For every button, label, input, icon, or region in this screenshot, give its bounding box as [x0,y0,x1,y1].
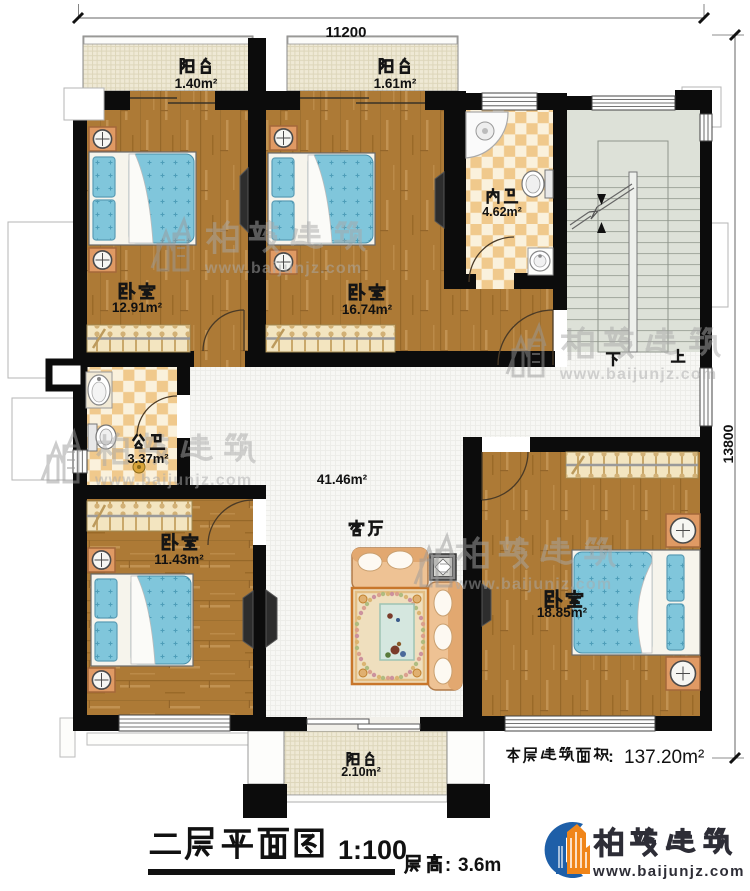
svg-text:1.61m²: 1.61m² [374,76,417,91]
svg-text:www.baijunjz.com: www.baijunjz.com [559,366,717,383]
svg-text:www.baijunjz.com: www.baijunjz.com [592,863,745,880]
svg-text:www.baijunjz.com: www.baijunjz.com [94,472,252,489]
svg-text::: : [608,747,614,766]
svg-text:3.37m²: 3.37m² [127,451,169,466]
svg-text::: : [445,855,451,876]
svg-text:1:100: 1:100 [338,835,407,865]
svg-text:137.20m²: 137.20m² [624,747,704,768]
svg-text:1.40m²: 1.40m² [175,76,218,91]
svg-text:11200: 11200 [326,24,367,41]
svg-text:2.10m²: 2.10m² [341,765,381,779]
svg-text:www.baijunjz.com: www.baijunjz.com [204,260,362,277]
svg-text:18.85m²: 18.85m² [537,605,588,620]
svg-text:3.6m: 3.6m [458,855,501,876]
svg-text:www.baijunjz.com: www.baijunjz.com [454,576,612,593]
svg-text:4.62m²: 4.62m² [482,205,522,219]
svg-text:11.43m²: 11.43m² [154,552,204,567]
svg-text:16.74m²: 16.74m² [342,302,393,317]
svg-text:13800: 13800 [720,424,736,463]
svg-text:12.91m²: 12.91m² [112,300,163,315]
svg-text:41.46m²: 41.46m² [317,472,368,487]
